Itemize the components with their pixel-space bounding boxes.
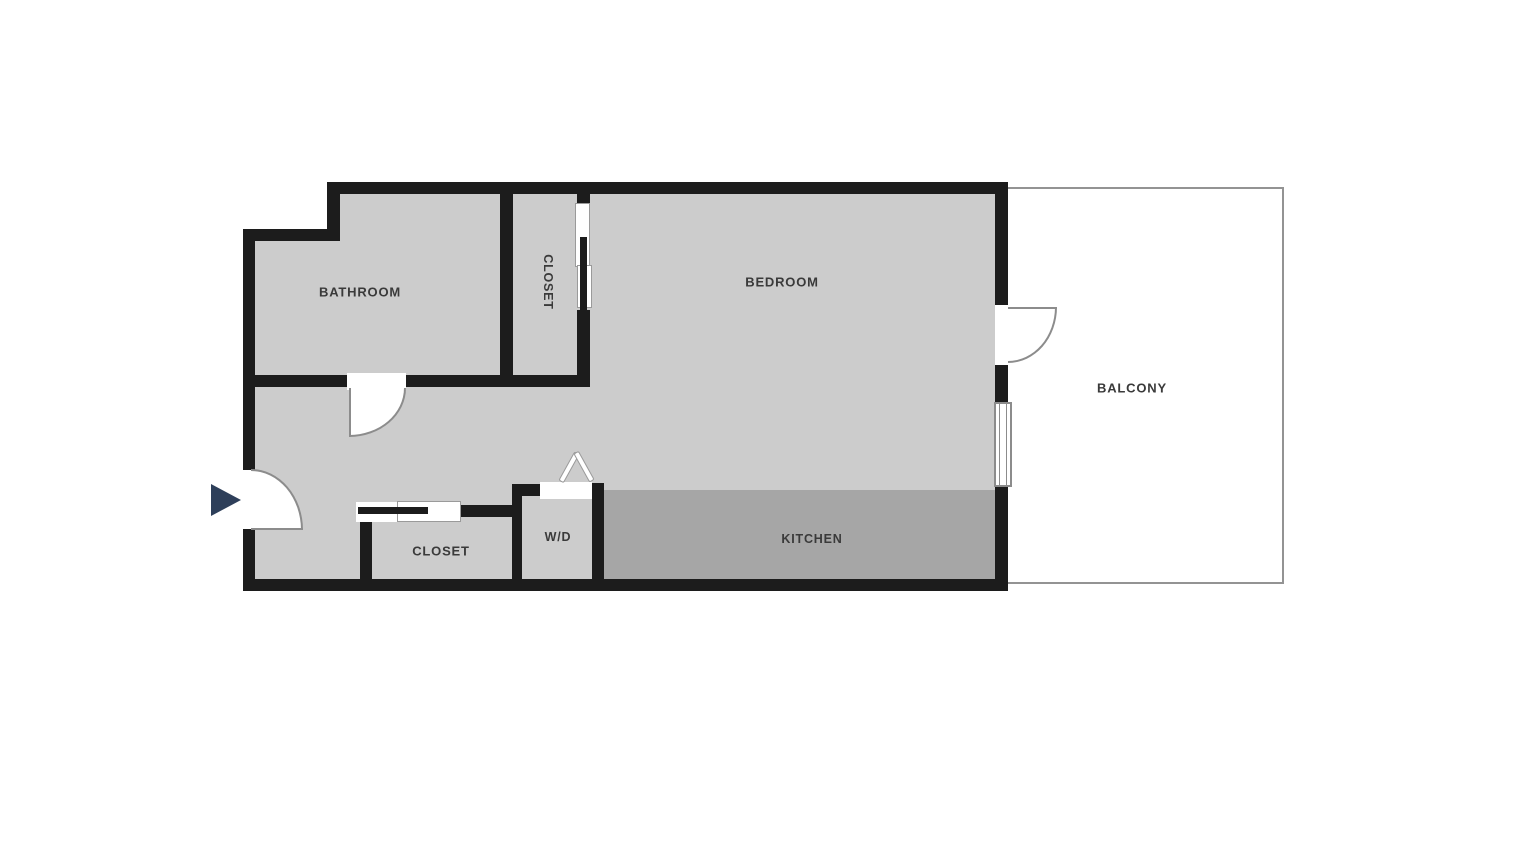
lower-closet-sliding-door-track <box>358 507 428 514</box>
wall-bottom <box>243 579 1008 591</box>
floor-plan: BATHROOM CLOSET BEDROOM BALCONY CLOSET W… <box>0 0 1520 855</box>
room-label-wd: W/D <box>545 530 572 544</box>
room-label-closet-lower: CLOSET <box>412 544 470 559</box>
room-label-closet-upper: CLOSET <box>541 254 555 310</box>
wall-closet-right-top <box>577 182 590 203</box>
wall-bathroom-bottom-right <box>405 375 590 387</box>
wall-right-upper <box>995 182 1008 305</box>
window-icon <box>994 402 1012 487</box>
window-pane-lines <box>999 404 1007 485</box>
floor-area-main <box>255 241 995 490</box>
wall-notch-horizontal <box>243 229 340 241</box>
wall-top <box>327 182 1008 194</box>
wall-lower-closet-top <box>460 505 513 517</box>
room-label-bathroom: BATHROOM <box>319 285 401 300</box>
wall-bathroom-right <box>500 182 513 387</box>
wall-wd-left <box>512 484 522 591</box>
room-label-kitchen: KITCHEN <box>781 532 842 546</box>
balcony-door-opening <box>995 305 1008 365</box>
room-label-balcony: BALCONY <box>1097 381 1167 396</box>
room-label-bedroom: BEDROOM <box>745 275 819 290</box>
upper-closet-sliding-door-track <box>580 237 587 312</box>
wall-wd-top <box>512 484 540 496</box>
entry-arrow-icon <box>211 484 241 516</box>
wall-right-lower <box>995 487 1008 591</box>
wd-door-opening <box>540 482 592 499</box>
floor-area-upper <box>340 194 995 241</box>
wall-right-middle <box>995 365 1008 402</box>
wall-bathroom-bottom-left <box>243 375 348 387</box>
wall-left-upper <box>243 229 255 470</box>
wall-wd-right <box>592 483 604 591</box>
